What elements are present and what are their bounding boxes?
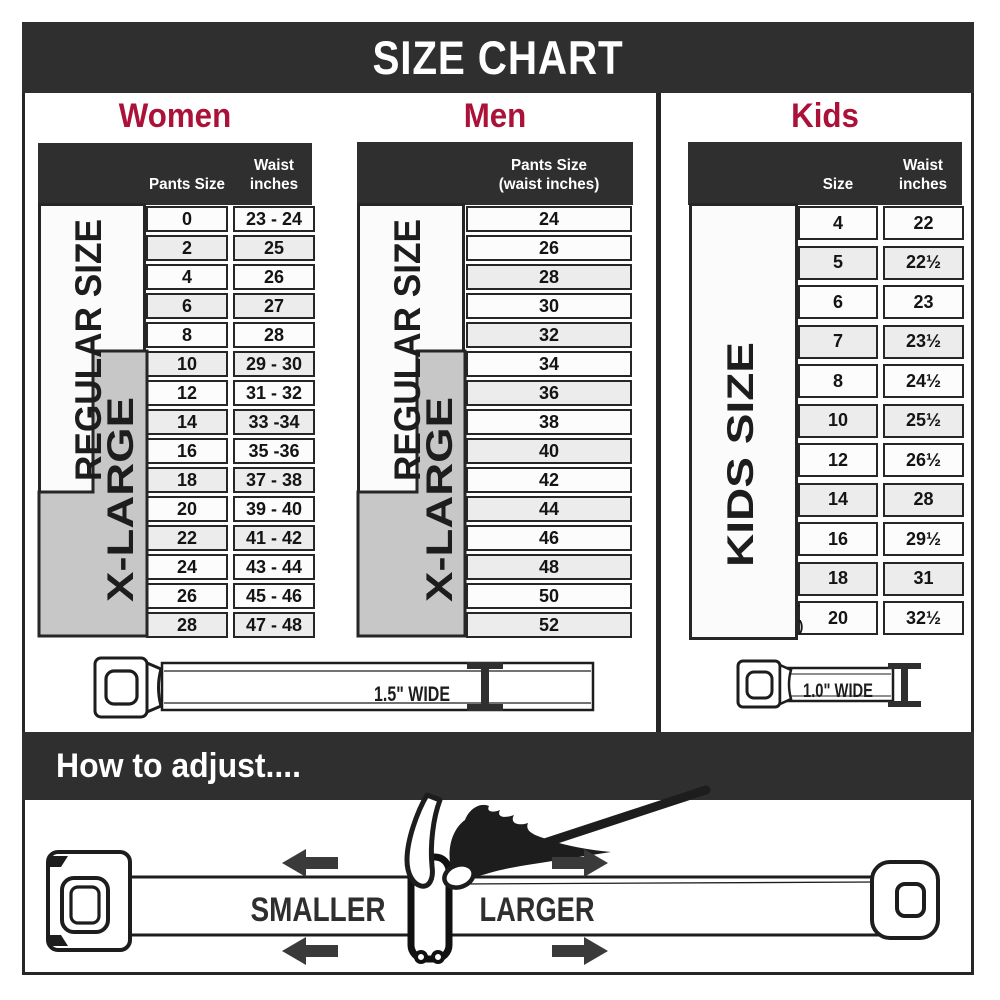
women-size-cell: 12 [146, 380, 228, 406]
men-size-cell: 32 [466, 322, 632, 348]
title-band: SIZE CHART [22, 22, 974, 93]
men-size-cell: 24 [466, 206, 632, 232]
adjust-band: How to adjust.... [22, 732, 974, 800]
women-size-cell: 14 [146, 409, 228, 435]
panel-divider [656, 93, 661, 732]
men-size-cell: 50 [466, 583, 632, 609]
women-size-cell: 8 [146, 322, 228, 348]
kids-col2-header: Waist inches [885, 150, 961, 200]
men-size-cell: 46 [466, 525, 632, 551]
women-size-table: 023 - 242254266278281029 - 301231 - 3214… [146, 206, 315, 638]
men-heading: Men [403, 97, 587, 139]
kids-size-cell: 8 [798, 364, 878, 398]
men-size-cell: 42 [466, 467, 632, 493]
women-waist-cell: 33 -34 [233, 409, 315, 435]
men-size-table: 242628303234363840424446485052 [466, 206, 632, 638]
kids-waist-cell: 23 [883, 285, 964, 319]
women-size-cell: 24 [146, 554, 228, 580]
kids-waist-cell: 22 [883, 206, 964, 240]
women-size-cell: 26 [146, 583, 228, 609]
kids-size-cell: 10 [798, 404, 878, 438]
women-waist-cell: 35 -36 [233, 438, 315, 464]
adjust-heading: How to adjust.... [56, 747, 301, 786]
women-waist-cell: 26 [233, 264, 315, 290]
men-size-cell: 30 [466, 293, 632, 319]
kids-heading: Kids [733, 97, 917, 139]
women-waist-cell: 39 - 40 [233, 496, 315, 522]
kids-size-cell: 5 [798, 246, 878, 280]
women-waist-cell: 45 - 46 [233, 583, 315, 609]
women-waist-cell: 37 - 38 [233, 467, 315, 493]
women-size-cell: 10 [146, 351, 228, 377]
kids-size-cell: 12 [798, 443, 878, 477]
kids-size-cell: 16 [798, 522, 878, 556]
women-heading: Women [83, 97, 267, 139]
women-col1-header: Pants Size [148, 156, 226, 200]
kids-size-cell: 4 [798, 206, 878, 240]
men-size-cell: 26 [466, 235, 632, 261]
women-waist-cell: 28 [233, 322, 315, 348]
kids-size-cell: 20 [798, 601, 878, 635]
women-col2-header: Waist inches [235, 150, 313, 200]
kids-col1-header: Size [800, 156, 876, 200]
women-waist-cell: 47 - 48 [233, 612, 315, 638]
women-size-cell: 0 [146, 206, 228, 232]
men-size-cell: 28 [466, 264, 632, 290]
kids-size-cell: 7 [798, 325, 878, 359]
size-chart-graphic: SIZE CHART Women Men Kids Pants Size Wai… [0, 0, 1000, 1000]
kids-waist-cell: 26½ [883, 443, 964, 477]
women-size-cell: 28 [146, 612, 228, 638]
men-size-cell: 52 [466, 612, 632, 638]
women-waist-cell: 29 - 30 [233, 351, 315, 377]
women-waist-cell: 43 - 44 [233, 554, 315, 580]
men-col1-header: Pants Size (waist inches) [470, 150, 628, 200]
women-size-cell: 4 [146, 264, 228, 290]
page-title: SIZE CHART [372, 30, 623, 85]
women-size-cell: 16 [146, 438, 228, 464]
women-waist-cell: 31 - 32 [233, 380, 315, 406]
men-size-cell: 36 [466, 380, 632, 406]
kids-note: Note: Not intended for Toddler Sizes (T) [692, 582, 789, 636]
women-size-cell: 22 [146, 525, 228, 551]
women-waist-cell: 41 - 42 [233, 525, 315, 551]
kids-waist-cell: 29½ [883, 522, 964, 556]
men-size-cell: 44 [466, 496, 632, 522]
women-waist-cell: 27 [233, 293, 315, 319]
kids-waist-cell: 24½ [883, 364, 964, 398]
kids-size-table: 422522½623723½824½1025½1226½14281629½183… [798, 206, 964, 635]
kids-size-cell: 18 [798, 562, 878, 596]
kids-size-cell: 6 [798, 285, 878, 319]
kids-waist-cell: 31 [883, 562, 964, 596]
men-size-cell: 40 [466, 438, 632, 464]
kids-waist-cell: 28 [883, 483, 964, 517]
women-size-cell: 18 [146, 467, 228, 493]
women-waist-cell: 23 - 24 [233, 206, 315, 232]
kids-waist-cell: 22½ [883, 246, 964, 280]
kids-size-cell: 14 [798, 483, 878, 517]
women-size-cell: 2 [146, 235, 228, 261]
kids-waist-cell: 23½ [883, 325, 964, 359]
men-size-cell: 48 [466, 554, 632, 580]
men-size-cell: 34 [466, 351, 632, 377]
women-waist-cell: 25 [233, 235, 315, 261]
women-size-cell: 6 [146, 293, 228, 319]
kids-waist-cell: 25½ [883, 404, 964, 438]
kids-waist-cell: 32½ [883, 601, 964, 635]
men-size-cell: 38 [466, 409, 632, 435]
women-size-cell: 20 [146, 496, 228, 522]
